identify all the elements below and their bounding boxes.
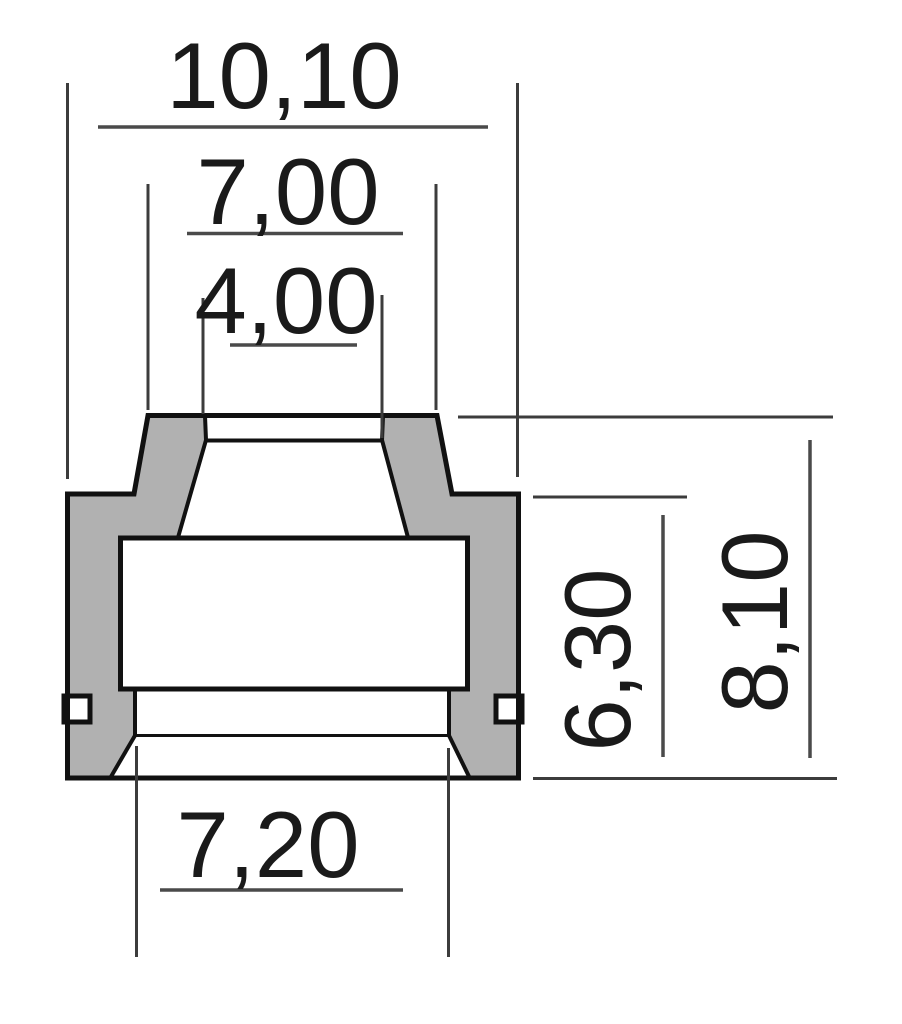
dim-total-height-label: 8,10 (702, 531, 807, 714)
dim-outer-diameter-label: 10,10 (166, 23, 401, 128)
stem-bore-cutout (178, 416, 408, 538)
technical-drawing-canvas: 10,10 7,00 4,00 7,20 6,30 (0, 0, 902, 1024)
insert-window (121, 538, 468, 689)
dim-stem-bore-group: 4,00 (195, 248, 382, 438)
seal-drawing: 10,10 7,00 4,00 7,20 6,30 (0, 0, 902, 1024)
dim-body-height-group: 6,30 (533, 497, 687, 757)
dim-stem-bore-label: 4,00 (195, 248, 378, 353)
dim-top-outer-label: 7,00 (197, 139, 380, 244)
dim-bottom-bore-label: 7,20 (177, 792, 360, 897)
bottom-bore-cutout (111, 689, 469, 777)
seal-profile (64, 416, 522, 779)
dim-body-height-label: 6,30 (545, 569, 650, 752)
